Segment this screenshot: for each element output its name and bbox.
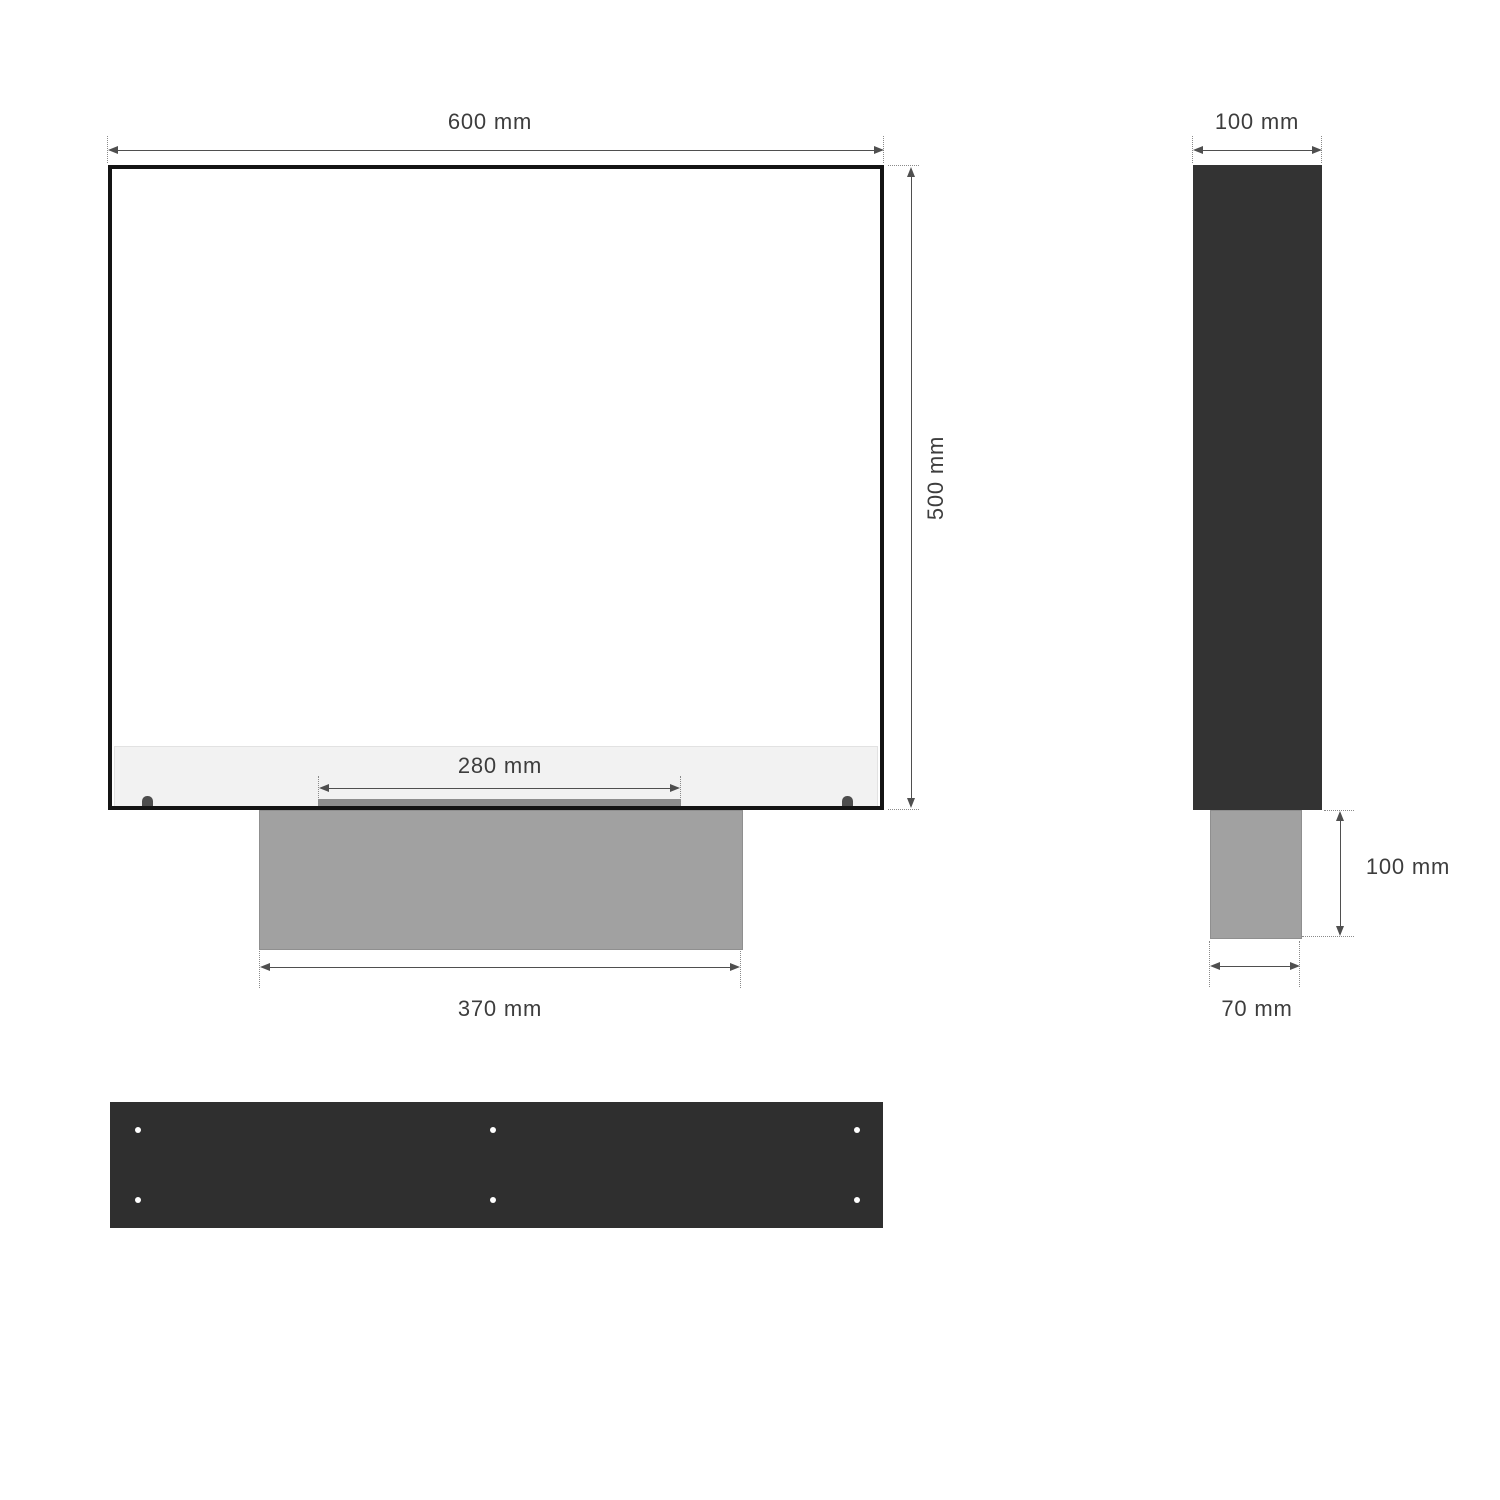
- arrowhead-left-icon: [260, 963, 270, 971]
- mounting-hole: [135, 1127, 141, 1133]
- extension-line: [1302, 936, 1354, 937]
- side-foot: [1210, 810, 1302, 939]
- arrowhead-down-icon: [1336, 926, 1344, 936]
- dimension-line: [911, 174, 912, 802]
- overall-width-label: 600 mm: [448, 109, 532, 135]
- arrowhead-right-icon: [730, 963, 740, 971]
- technical-drawing-canvas: 600 mm 500 mm 280 mm 370 mm: [0, 0, 1500, 1500]
- base-width-label: 370 mm: [458, 996, 542, 1022]
- extension-line: [888, 165, 919, 166]
- burner-width-label: 280 mm: [458, 753, 542, 779]
- arrowhead-right-icon: [874, 146, 884, 154]
- arrowhead-left-icon: [1193, 146, 1203, 154]
- arrowhead-up-icon: [907, 167, 915, 177]
- arrowhead-down-icon: [907, 798, 915, 808]
- arrowhead-up-icon: [1336, 811, 1344, 821]
- mounting-hole: [135, 1197, 141, 1203]
- arrowhead-right-icon: [1290, 962, 1300, 970]
- dimension-line: [265, 967, 736, 968]
- depth-label: 100 mm: [1215, 109, 1299, 135]
- dimension-line: [114, 150, 878, 151]
- mounting-hole: [490, 1197, 496, 1203]
- extension-line: [680, 776, 681, 806]
- dimension-line: [1199, 150, 1316, 151]
- dimension-line: [1340, 818, 1341, 930]
- extension-line: [888, 809, 919, 810]
- mounting-hole: [854, 1127, 860, 1133]
- mounting-hole: [854, 1197, 860, 1203]
- foot-depth-label: 70 mm: [1221, 996, 1292, 1022]
- arrowhead-left-icon: [108, 146, 118, 154]
- bottom-panel: [110, 1102, 883, 1228]
- dimension-line: [1216, 966, 1294, 967]
- arrowhead-right-icon: [1312, 146, 1322, 154]
- mounting-hole: [490, 1127, 496, 1133]
- overall-height-label: 500 mm: [923, 436, 949, 520]
- arrowhead-left-icon: [1210, 962, 1220, 970]
- foot-height-label: 100 mm: [1366, 854, 1450, 880]
- side-body: [1193, 165, 1322, 810]
- dimension-line: [324, 788, 676, 789]
- arrowhead-right-icon: [670, 784, 680, 792]
- arrowhead-left-icon: [319, 784, 329, 792]
- front-outline: [108, 165, 884, 810]
- extension-line: [740, 951, 741, 988]
- base-box: [259, 810, 743, 950]
